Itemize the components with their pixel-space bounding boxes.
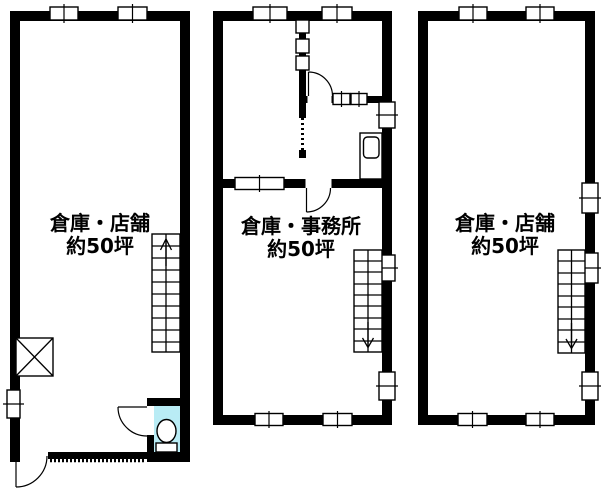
wall-right	[382, 11, 392, 425]
wall-opening-icon	[296, 20, 309, 33]
wall-bottom	[213, 415, 392, 425]
unit-middle-section: 倉庫・事務所 約50坪	[213, 4, 398, 428]
room-label: 倉庫・店舗	[49, 211, 150, 235]
window-icon	[579, 372, 601, 400]
room-area-label: 約50坪	[66, 234, 134, 258]
window-icon	[118, 4, 147, 23]
unit-left-section: 倉庫・店舗 約50坪	[3, 4, 190, 487]
staircase-down-icon	[354, 250, 382, 352]
unit-right-section: 倉庫・店舗 約50坪	[418, 4, 601, 428]
room-label: 倉庫・店舗	[454, 211, 555, 235]
wall-top	[418, 11, 595, 21]
interior-wall-upper	[299, 91, 392, 107]
toilet-room	[118, 398, 190, 452]
wall-bottom-toilet-section	[147, 452, 190, 462]
room-area-label: 約50坪	[471, 234, 539, 258]
window-icon	[526, 411, 554, 428]
window-icon	[526, 4, 554, 23]
staircase-up-icon	[152, 234, 180, 352]
window-icon	[253, 4, 287, 23]
wall-opening-icon	[296, 56, 309, 70]
wall-right	[180, 11, 190, 462]
window-icon	[579, 183, 601, 213]
toilet-wall-left	[147, 435, 154, 452]
door-opening	[306, 178, 332, 189]
staircase-down-icon	[558, 250, 585, 353]
window-icon	[235, 175, 284, 192]
wall-opening-icon	[296, 39, 309, 53]
door-swing-icon	[16, 456, 47, 487]
window-icon	[3, 390, 24, 418]
x-box-icon	[16, 338, 53, 376]
interior-wall-vertical	[296, 20, 309, 158]
toilet-wall-top	[147, 398, 190, 406]
wall-top	[10, 11, 190, 21]
window-icon	[333, 91, 350, 107]
room-area-label: 約50坪	[267, 237, 335, 261]
door-swing-icon	[307, 188, 331, 212]
wall-right	[585, 11, 595, 425]
window-icon	[322, 4, 352, 23]
wall-bottom-stub	[10, 452, 16, 462]
window-icon	[376, 102, 398, 128]
window-icon	[351, 91, 367, 107]
window-icon	[323, 411, 352, 428]
wall-bottom-shutter-section	[48, 452, 147, 459]
window-icon	[376, 372, 398, 400]
wall-left	[213, 11, 223, 425]
window-icon	[255, 411, 283, 428]
wall-bottom	[418, 415, 595, 425]
sink-counter-icon	[360, 133, 382, 179]
door-swing-icon	[309, 72, 333, 96]
window-icon	[458, 411, 487, 428]
window-icon	[50, 4, 78, 23]
floor-plan-canvas: 倉庫・店舗 約50坪	[0, 0, 604, 494]
room-label: 倉庫・事務所	[240, 214, 361, 238]
wall-left	[418, 11, 428, 425]
toilet-icon	[156, 420, 177, 453]
window-icon	[459, 4, 487, 23]
door-opening	[308, 95, 332, 104]
door-swing-icon	[118, 407, 147, 436]
floor-plan-drawing: 倉庫・店舗 約50坪	[0, 0, 604, 494]
